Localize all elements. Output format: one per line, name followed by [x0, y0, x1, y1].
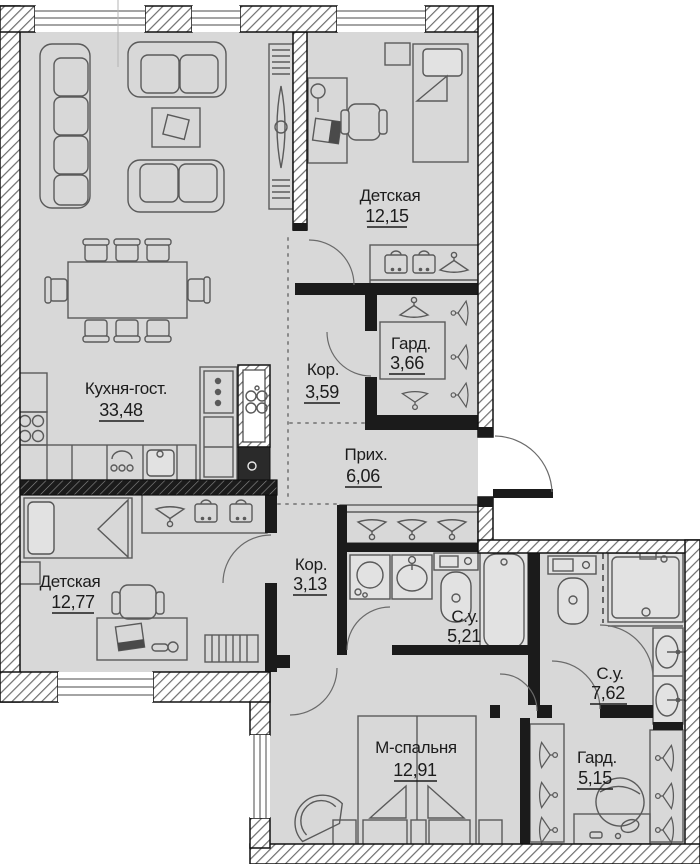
room-name: Прих. [345, 445, 388, 464]
bed-single-2-icon [24, 498, 132, 558]
sink-icon [392, 555, 432, 599]
room-name: С.у. [596, 664, 623, 683]
desk-chair-2-icon [112, 585, 164, 619]
apartment-floor [20, 32, 685, 844]
room-area: 12,91 [393, 760, 437, 780]
washing-machine-icon [350, 555, 390, 599]
kitchen-partition-wall [0, 480, 277, 495]
room-name: Кухня-гост. [85, 379, 167, 398]
sofa-bottom-icon [128, 160, 224, 212]
room-area: 33,48 [99, 400, 143, 420]
room-area: 5,15 [578, 768, 612, 788]
floor-plan-svg: Кухня-гост. 33,48 Детская 12,15 Гард. 3,… [0, 0, 700, 864]
room-area: 6,06 [346, 466, 380, 486]
double-sink-icon [653, 628, 686, 724]
kitchen-sink-icon [147, 450, 174, 476]
room-area: 3,59 [305, 382, 339, 402]
room-label-corridor-2: Кор. 3,13 [293, 555, 327, 595]
room-name: Детская [360, 186, 421, 205]
room-label-corridor-1: Кор. 3,59 [304, 360, 340, 403]
entrance-door-arc [495, 436, 552, 492]
room-area: 5,21 [447, 626, 481, 646]
bed-single-icon [413, 44, 468, 162]
room-area: 12,15 [365, 206, 409, 226]
room-area: 3,66 [390, 353, 424, 373]
shower-cabin-icon [608, 553, 683, 626]
room-name: М-спальня [375, 738, 457, 757]
window-living-1 [35, 6, 145, 32]
floor-plan-page: Кухня-гост. 33,48 Детская 12,15 Гард. 3,… [0, 0, 700, 864]
window-children-2 [58, 672, 153, 702]
room-name: Кор. [295, 555, 327, 574]
room-name: Гард. [577, 748, 617, 767]
window-bedroom [250, 735, 270, 818]
entrance-door-leaf [493, 489, 553, 498]
sofa-top-icon [128, 42, 226, 97]
desk-chair-icon [341, 104, 387, 140]
bathtub-icon [480, 550, 528, 652]
room-area: 7,62 [591, 683, 625, 703]
room-label-wardrobe-2: Гард. 5,15 [577, 748, 617, 789]
room-name: Детская [40, 572, 101, 591]
room-name: С.у. [451, 607, 478, 626]
room-label-bathroom-2: С.у. 7,62 [590, 664, 627, 704]
room-area: 3,13 [293, 574, 327, 594]
utility-shaft-icon [238, 365, 270, 483]
window-children-1 [337, 6, 425, 32]
room-area: 12,77 [51, 592, 95, 612]
room-name: Кор. [307, 360, 339, 379]
window-living-2 [192, 6, 240, 32]
room-name: Гард. [391, 334, 431, 353]
